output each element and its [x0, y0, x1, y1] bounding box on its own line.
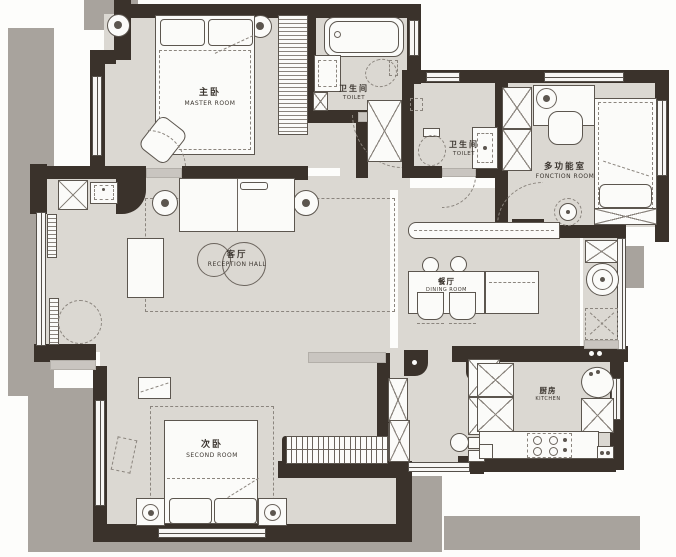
room-label-zh: 客厅 [177, 250, 297, 260]
window [617, 238, 626, 350]
bed-end-storage [594, 208, 657, 225]
room-label-dining: 餐厅 DINING ROOM [408, 277, 485, 293]
kitchen-cabinet [581, 398, 614, 433]
faucet-dot [589, 372, 593, 376]
bench-line [414, 230, 554, 231]
room-label-toilet-top: 卫生间 TOILET [314, 84, 394, 101]
wardrobe [278, 15, 308, 135]
wardrobe-cabinet [502, 87, 532, 129]
toilet-tank [389, 60, 398, 76]
window [657, 100, 667, 176]
island-line [489, 282, 535, 283]
room-label-en: FONCTION ROOM [505, 173, 625, 180]
burner [533, 447, 542, 456]
lamp-dot [256, 22, 264, 30]
window [92, 76, 102, 156]
window [95, 400, 105, 506]
sink-basin [318, 60, 337, 87]
wall [30, 164, 47, 214]
outlet-dot [589, 351, 594, 356]
wall-cap-dot [412, 360, 417, 365]
lamp-dot [543, 95, 550, 102]
counter-end [479, 444, 493, 459]
pillow [214, 498, 257, 524]
room-label-zh: 卫生间 [314, 84, 394, 94]
knob [563, 448, 567, 452]
bookshelf [286, 436, 388, 464]
room-label-kitchen: 厨房 KITCHEN [508, 386, 588, 402]
outlet-dot [597, 351, 602, 356]
room-label-en: MASTER ROOM [150, 100, 270, 107]
pillow [160, 19, 205, 46]
knob [563, 438, 567, 442]
room-label-zh: 次卧 [152, 440, 272, 451]
desk-chair [548, 111, 583, 145]
wall [414, 166, 442, 178]
room-label-en: DINING ROOM [408, 287, 485, 293]
washer-dot [600, 277, 605, 282]
floor-plan: 主卧 MASTER ROOM 卫生间 TOILET 卫生间 TOILET [0, 0, 676, 557]
balcony-sill [584, 340, 619, 349]
room-label-en: SECOND ROOM [152, 452, 272, 459]
burner [533, 436, 542, 445]
room-label-zh: 卫生间 [434, 140, 494, 150]
hall-cabinet [367, 100, 402, 162]
door-threshold [308, 352, 386, 363]
burner [549, 436, 558, 445]
room-label-en: RECEPTION HALL [177, 261, 297, 268]
room-label-master: 主卧 MASTER ROOM [150, 88, 270, 107]
room-label-en: KITCHEN [508, 396, 588, 402]
window [408, 462, 470, 472]
washing-machine [58, 180, 88, 210]
sofa-cushion [240, 182, 268, 190]
room-label-fonction: 多功能室 FONCTION ROOM [505, 162, 625, 180]
room-label-en: TOILET [434, 151, 494, 158]
toilet-door-arc [442, 176, 476, 208]
stool-dot [566, 210, 570, 214]
wall [396, 474, 412, 528]
burner [549, 447, 558, 456]
shadow [28, 388, 94, 552]
shadow [444, 516, 640, 550]
bath-drain [334, 31, 341, 38]
window [544, 72, 624, 82]
chair-line [417, 323, 444, 324]
lamp-dot [148, 510, 154, 516]
room-label-toilet-mid: 卫生间 TOILET [434, 140, 494, 157]
blanket-edge [167, 478, 255, 479]
radiator [47, 214, 57, 258]
kitchen-island [485, 271, 539, 314]
plant [58, 300, 102, 344]
window [158, 528, 266, 538]
tv-cabinet [127, 238, 164, 298]
room-label-zh: 主卧 [150, 88, 270, 99]
lamp-dot [270, 510, 276, 516]
door-threshold [146, 168, 182, 178]
pillow [599, 184, 652, 208]
window [409, 20, 419, 56]
knob [606, 451, 610, 455]
sofa-divider [237, 179, 238, 231]
lamp-dot [302, 199, 310, 207]
window [426, 72, 460, 82]
dining-chair [449, 292, 476, 320]
kitchen-cabinet [477, 397, 514, 432]
wall [402, 82, 414, 178]
pillow [169, 498, 212, 524]
balcony-cabinet [585, 240, 618, 263]
stool [450, 433, 469, 452]
door-threshold [50, 360, 96, 370]
faucet-dot [102, 188, 105, 191]
lamp-dot [161, 199, 169, 207]
pillow [208, 19, 253, 46]
hall-cabinet [388, 378, 408, 422]
room-label-reception: 客厅 RECEPTION HALL [177, 250, 297, 268]
bookshelf-line [287, 449, 387, 450]
lamp-dot [114, 21, 122, 29]
room-label-zh: 多功能室 [505, 162, 625, 172]
fixture [410, 98, 423, 111]
knob [600, 451, 604, 455]
room-label-zh: 厨房 [508, 386, 588, 395]
dining-chair [417, 292, 444, 320]
master-door-arc [148, 130, 186, 168]
cabinet [389, 420, 410, 462]
room-label-zh: 餐厅 [408, 277, 485, 286]
chair-line [449, 323, 476, 324]
faucet-dot [596, 370, 600, 374]
room-label-second: 次卧 SECOND ROOM [152, 440, 272, 459]
wall [308, 110, 358, 123]
window [36, 212, 46, 346]
